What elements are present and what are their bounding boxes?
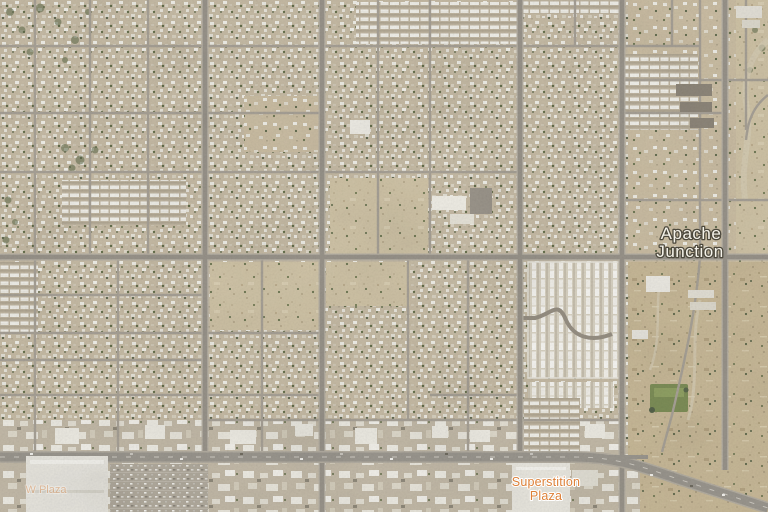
map-viewport[interactable]: Apache Junction Superstition Plaza W Pla…: [0, 0, 768, 512]
poi-label-faint-partial[interactable]: W Plaza: [26, 484, 68, 496]
poi-label-superstition-line2[interactable]: Plaza: [530, 489, 562, 503]
city-label-apache-line2[interactable]: Junction: [656, 242, 723, 261]
imagery-grain: [0, 0, 768, 512]
city-label-apache-line1[interactable]: Apache: [661, 224, 722, 243]
poi-label-superstition-line1[interactable]: Superstition: [512, 475, 580, 489]
satellite-map-canvas[interactable]: Apache Junction Superstition Plaza W Pla…: [0, 0, 768, 512]
